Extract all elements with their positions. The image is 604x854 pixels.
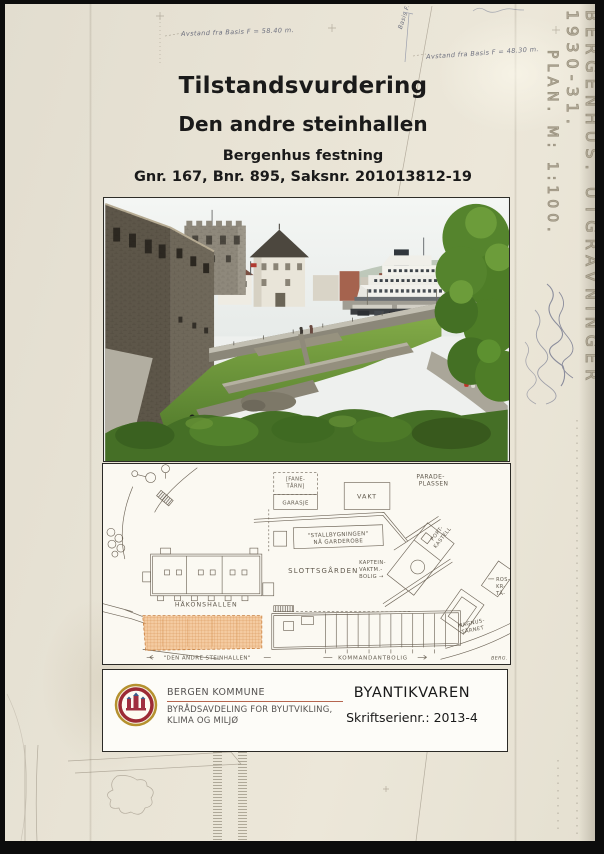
svg-text:VAKTM.-: VAKTM.- bbox=[359, 567, 383, 573]
pencil-scribble bbox=[473, 8, 524, 12]
org-dept-line2: KLIMA OG MILJØ bbox=[167, 716, 343, 727]
label-parade-plassen: PARADE- bbox=[416, 474, 444, 481]
series-number: Skriftserienr.: 2013-4 bbox=[327, 710, 497, 725]
department-name: BYANTIKVAREN bbox=[327, 685, 497, 701]
svg-text:BOLIG →: BOLIG → bbox=[359, 574, 384, 580]
label-kaptein: KAPTEIN- bbox=[359, 560, 386, 566]
label-garasje: GARASJE bbox=[282, 500, 309, 506]
plan-title-vertical: BERGENHUS. UTGRAVNINGER 1930-31. PLAN. M… bbox=[541, 10, 595, 470]
bergen-kommune-seal-icon bbox=[114, 683, 158, 727]
page-title: Tilstandsvurdering bbox=[98, 73, 508, 99]
archival-plan-paper: BERGENHUS. UTGRAVNINGER 1930-31. PLAN. M… bbox=[5, 4, 595, 841]
org-rule bbox=[167, 701, 343, 702]
org-name: BERGEN KOMMUNE bbox=[167, 687, 343, 698]
label-den-andre-steinhallen: "DEN ANDRE STEINHALLEN" bbox=[164, 655, 251, 661]
report-cover-scan: BERGENHUS. UTGRAVNINGER 1930-31. PLAN. M… bbox=[0, 0, 604, 854]
svg-text:TÅRN]: TÅRN] bbox=[286, 483, 305, 490]
highlight-den-andre-steinhallen bbox=[143, 616, 262, 651]
publication-info: BYANTIKVAREN Skriftserienr.: 2013-4 bbox=[327, 685, 497, 725]
label-rosenkrantz: ROS- bbox=[496, 577, 510, 583]
site-plan-drawing: PARADE- PLASSEN [FANE- TÅRN] GARASJE VAK… bbox=[103, 464, 510, 664]
page-subtitle: Den andre steinhallen bbox=[98, 112, 508, 136]
site-plan-map: PARADE- PLASSEN [FANE- TÅRN] GARASJE VAK… bbox=[102, 463, 511, 665]
case-reference: Gnr. 167, Bnr. 895, Saksnr. 201013812-19 bbox=[98, 169, 508, 185]
label-slottsgarden: SLOTTSGÅRDEN bbox=[288, 566, 358, 575]
plan-title-text: BERGENHUS. UTGRAVNINGER 1930-31. bbox=[563, 10, 595, 470]
svg-text:KR-: KR- bbox=[496, 584, 505, 590]
publisher-footer: BERGEN KOMMUNE BYRÅDSAVDELING FOR BYUTVI… bbox=[102, 669, 508, 752]
svg-text:PLASSEN: PLASSEN bbox=[419, 481, 449, 488]
cover-photo-scene bbox=[104, 198, 509, 461]
label-berg-initials: BERG. bbox=[491, 655, 508, 661]
publisher-identity: BERGEN KOMMUNE BYRÅDSAVDELING FOR BYUTVI… bbox=[167, 687, 343, 726]
cover-photo bbox=[103, 197, 510, 462]
site-name: Bergenhus festning bbox=[98, 148, 508, 164]
label-fanetarn: [FANE- bbox=[286, 477, 305, 483]
label-kommandantbolig: KOMMANDANTBOLIG bbox=[338, 655, 408, 661]
label-vakt: VAKT bbox=[357, 492, 377, 500]
label-hakonshallen: HÅKONSHALLEN bbox=[175, 600, 238, 609]
plan-scale-text: PLAN. M: 1:100. bbox=[544, 10, 560, 470]
svg-text:TÅ-: TÅ- bbox=[495, 590, 505, 597]
org-dept-line1: BYRÅDSAVDELING FOR BYUTVIKLING, bbox=[167, 705, 343, 716]
